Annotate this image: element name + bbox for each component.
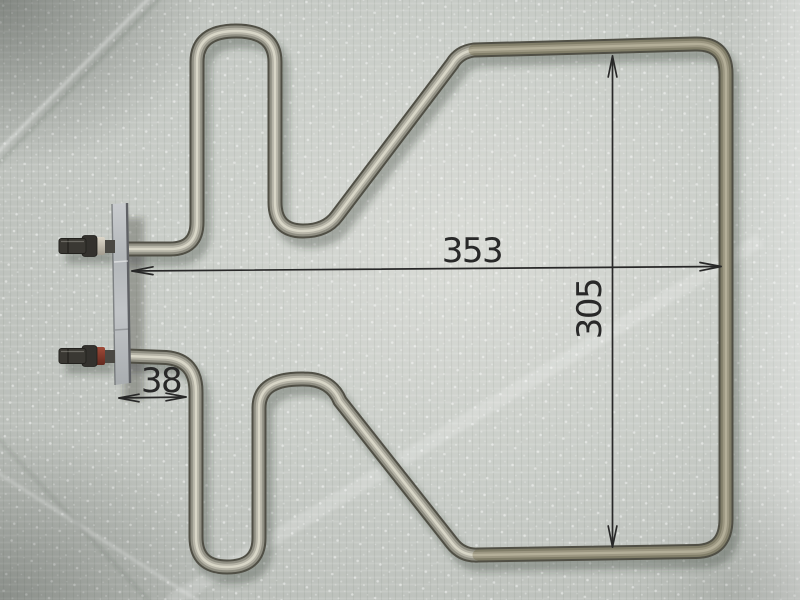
plate-highlight	[114, 261, 128, 262]
plate-scratch	[115, 329, 129, 330]
terminal-bottom-spade	[59, 349, 86, 364]
dimension-offset-label: 38	[141, 361, 181, 401]
tarp-bright-right-edge	[730, 0, 800, 600]
dimension-height-label: 305	[570, 279, 610, 339]
dimension-width-label: 353	[442, 231, 502, 271]
terminal-top-spade	[59, 239, 86, 254]
terminal-top-stub	[104, 240, 115, 253]
heating-element-photo: 353 305 38	[0, 0, 800, 600]
terminal-bottom-stub	[104, 350, 115, 363]
photo-stage: 353 305 38	[0, 0, 800, 600]
